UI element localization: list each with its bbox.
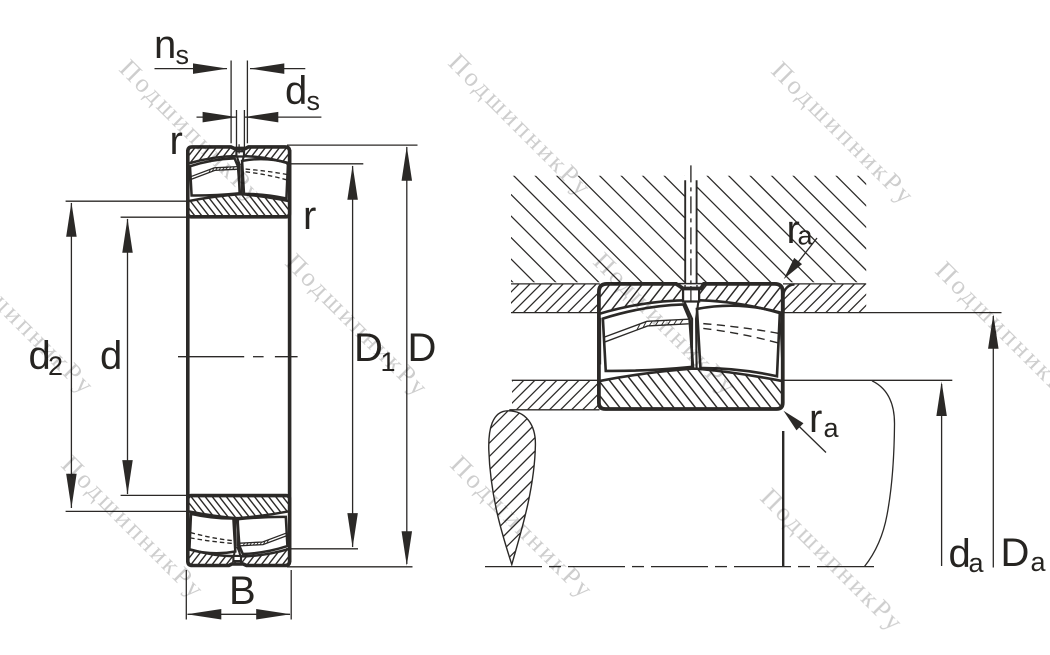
svg-text:s: s xyxy=(176,40,190,70)
svg-text:d: d xyxy=(100,334,122,378)
svg-text:a: a xyxy=(798,221,814,251)
svg-text:n: n xyxy=(154,23,176,67)
svg-text:s: s xyxy=(307,86,321,116)
svg-text:d: d xyxy=(285,69,307,113)
svg-text:B: B xyxy=(229,569,256,613)
svg-text:r: r xyxy=(809,397,822,441)
svg-text:a: a xyxy=(824,413,840,443)
svg-text:r: r xyxy=(303,194,316,238)
svg-text:d: d xyxy=(949,532,971,576)
svg-text:a: a xyxy=(1031,547,1047,577)
svg-text:a: a xyxy=(969,548,985,578)
svg-text:D: D xyxy=(1001,531,1030,575)
